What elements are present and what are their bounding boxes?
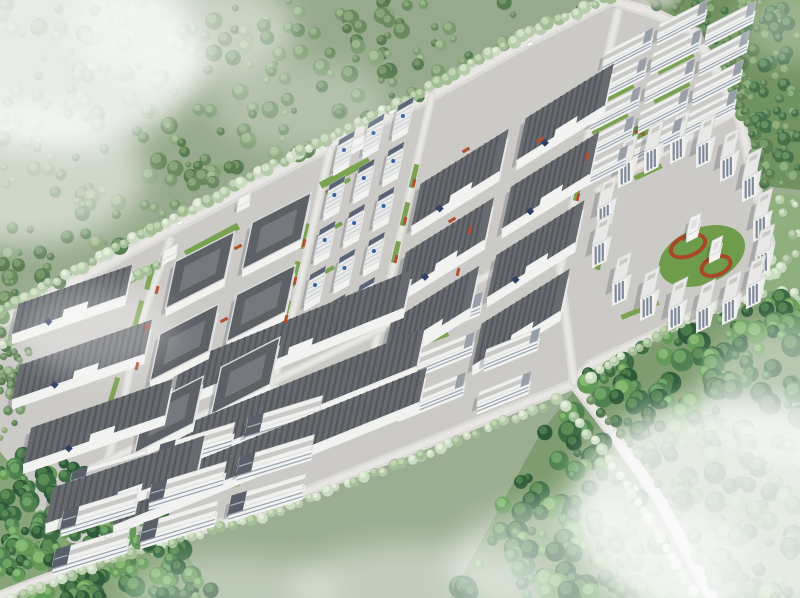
- masterplan-aerial-rendering: [0, 0, 800, 598]
- fog-patch: [210, 60, 390, 150]
- aerial-render-viewport: [0, 0, 800, 598]
- fog-patch: [15, 285, 175, 375]
